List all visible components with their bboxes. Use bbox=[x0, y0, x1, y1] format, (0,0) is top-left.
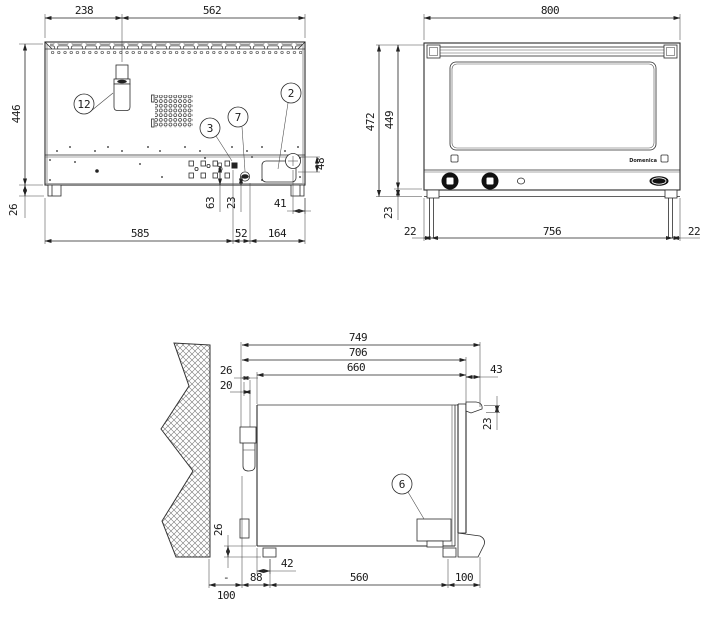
side-view: 6 749 706 660 26 20 43 23 26 bbox=[161, 331, 502, 602]
rear-dim-446: 446 bbox=[10, 105, 23, 123]
side-dim-100-left: 100 bbox=[217, 589, 235, 602]
front-door-handle bbox=[427, 45, 677, 58]
door-glass bbox=[450, 62, 656, 150]
rear-dim-562: 562 bbox=[203, 4, 221, 17]
rear-dim-164: 164 bbox=[268, 227, 287, 240]
front-view: Domenica 800 472 449 bbox=[364, 4, 700, 241]
control-panel bbox=[424, 170, 680, 190]
side-dim-560: 560 bbox=[350, 571, 368, 584]
rear-dim-585: 585 bbox=[131, 227, 149, 240]
front-dim-23: 23 bbox=[382, 207, 395, 219]
front-dim-800: 800 bbox=[541, 4, 559, 17]
side-feet bbox=[263, 548, 456, 557]
side-dim-660: 660 bbox=[347, 361, 365, 374]
side-dim-42: 42 bbox=[281, 557, 293, 570]
door-screw-right bbox=[661, 155, 668, 162]
side-dim-dash: - bbox=[223, 571, 229, 584]
oven-dimension-drawing: 12 3 7 2 238 562 446 26 585 52 bbox=[0, 0, 715, 617]
rear-dim-26: 26 bbox=[7, 204, 20, 216]
rear-perforation-grid bbox=[155, 95, 193, 128]
rear-dim-48: 48 bbox=[314, 158, 327, 170]
front-dim-449: 449 bbox=[383, 111, 396, 129]
side-dim-26-top: 26 bbox=[220, 364, 232, 377]
callout-12-label: 12 bbox=[77, 98, 90, 111]
side-dim-88: 88 bbox=[250, 571, 262, 584]
item-3-target-square bbox=[232, 163, 238, 169]
rear-dim-238: 238 bbox=[75, 4, 93, 17]
side-dim-43: 43 bbox=[490, 363, 502, 376]
door-screw-left bbox=[451, 155, 458, 162]
rear-feet bbox=[48, 185, 304, 196]
side-dim-26-bottom: 26 bbox=[212, 524, 225, 536]
rear-dim-23: 23 bbox=[225, 197, 238, 209]
side-dim-20: 20 bbox=[220, 379, 232, 392]
side-dim-100-right: 100 bbox=[455, 571, 473, 584]
technical-drawing-page: 12 3 7 2 238 562 446 26 585 52 bbox=[0, 0, 715, 617]
rear-vent-slot-row bbox=[50, 44, 302, 49]
front-dim-472: 472 bbox=[364, 113, 377, 131]
front-dim-756: 756 bbox=[543, 225, 561, 238]
front-dimensions: 800 472 449 23 22 756 22 bbox=[364, 4, 700, 241]
item-6-box bbox=[417, 519, 451, 547]
wall-section bbox=[161, 343, 210, 557]
side-chimney bbox=[240, 427, 256, 471]
callout-2-label: 2 bbox=[288, 87, 295, 100]
brand-model-label: Domenica bbox=[629, 158, 657, 164]
rear-dim-63: 63 bbox=[204, 197, 217, 209]
rear-dim-41: 41 bbox=[274, 197, 286, 210]
front-body-outline bbox=[424, 43, 680, 190]
front-dim-22-right: 22 bbox=[688, 225, 700, 238]
rear-view: 12 3 7 2 238 562 446 26 585 52 bbox=[7, 4, 327, 244]
side-dim-749: 749 bbox=[349, 331, 367, 344]
rear-chimney bbox=[114, 65, 130, 111]
callout-7-label: 7 bbox=[235, 111, 242, 124]
rear-dim-52: 52 bbox=[235, 227, 247, 240]
back-lower-fitting bbox=[240, 519, 249, 538]
indicator-light bbox=[517, 178, 524, 184]
side-dim-706: 706 bbox=[349, 346, 367, 359]
door-hinge-profile bbox=[458, 533, 485, 557]
side-dim-23: 23 bbox=[481, 418, 494, 430]
side-handle-profile bbox=[466, 402, 482, 413]
callout-3-label: 3 bbox=[207, 122, 214, 135]
small-switch bbox=[218, 163, 222, 167]
callout-6-label: 6 bbox=[399, 478, 406, 491]
front-dim-22-left: 22 bbox=[404, 225, 416, 238]
chimney-cap-opening bbox=[117, 80, 127, 84]
rear-hole-row bbox=[50, 50, 302, 55]
